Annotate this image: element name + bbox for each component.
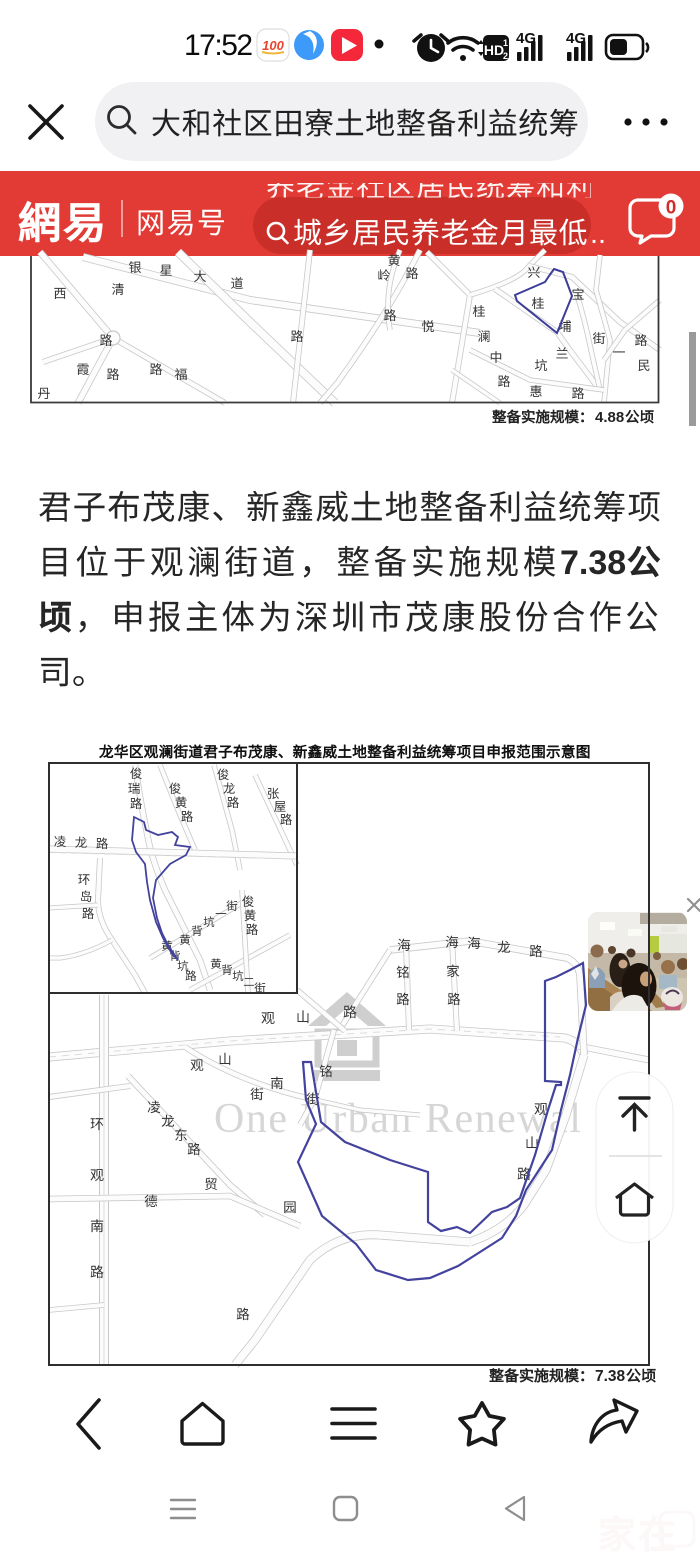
svg-text:7.38: 7.38 [595,1368,626,1385]
svg-text:100: 100 [262,38,284,53]
svg-text:..: .. [590,218,606,250]
svg-text:17:52: 17:52 [184,29,252,62]
svg-text:HD: HD [484,42,504,58]
svg-text:0: 0 [666,198,677,219]
svg-text:One Urban Renewal: One Urban Renewal [214,1096,582,1142]
svg-text:1: 1 [503,38,508,48]
svg-text:7.38: 7.38 [560,544,626,582]
svg-text:2: 2 [503,51,508,61]
svg-text:4.88: 4.88 [595,409,624,426]
